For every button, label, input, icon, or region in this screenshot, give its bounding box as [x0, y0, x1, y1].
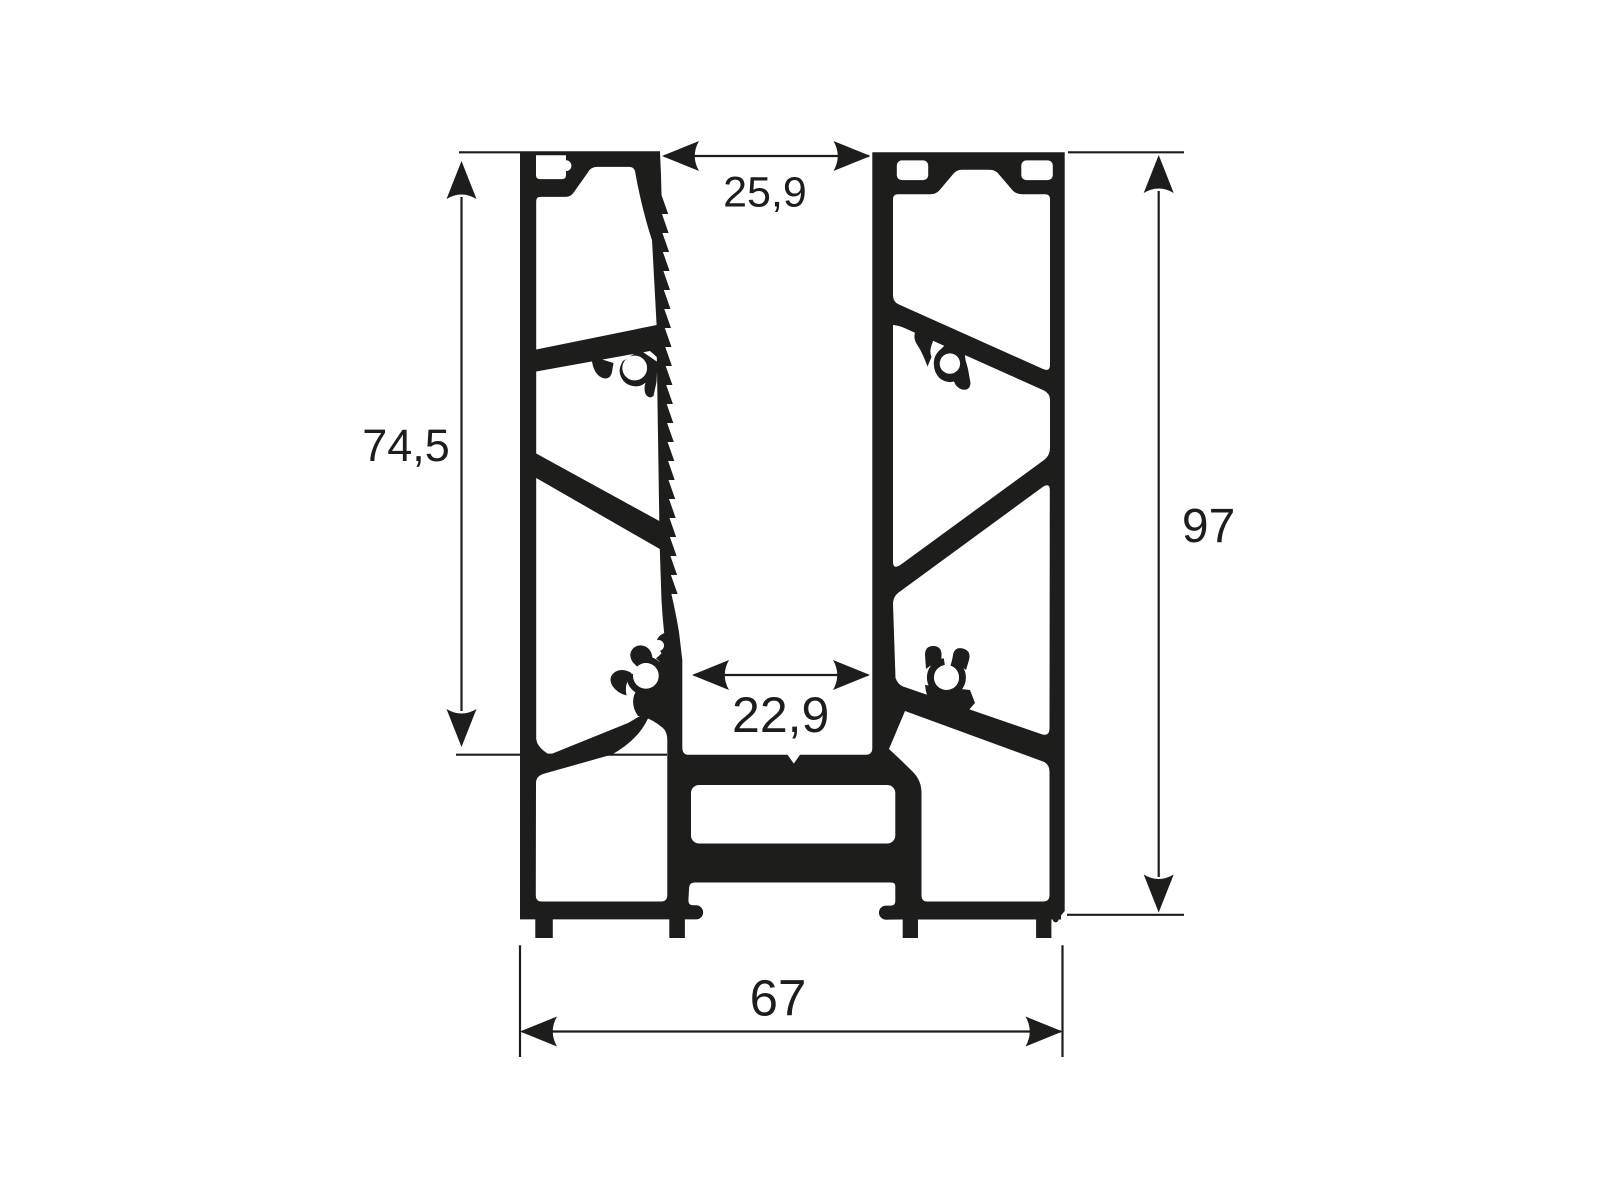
svg-text:25,9: 25,9 [723, 168, 807, 216]
svg-text:67: 67 [750, 969, 807, 1026]
svg-text:74,5: 74,5 [362, 420, 450, 471]
svg-text:97: 97 [1182, 500, 1235, 553]
svg-text:22,9: 22,9 [732, 687, 829, 743]
